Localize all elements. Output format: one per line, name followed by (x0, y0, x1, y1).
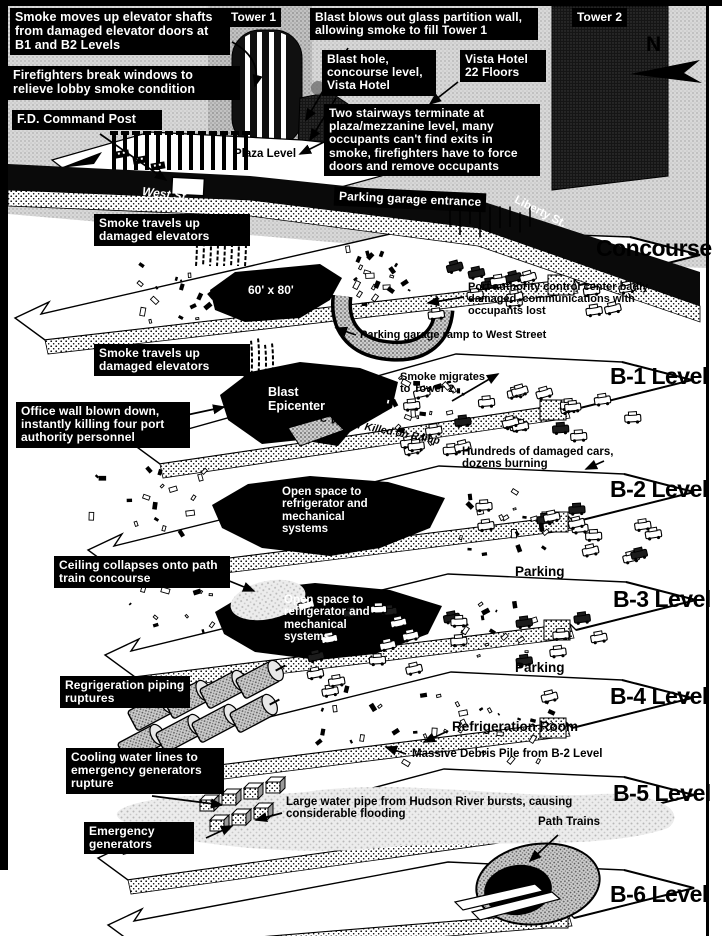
callout-smoke-travels-2: Smoke travels up damaged elevators (94, 344, 250, 376)
port-authority-label: Port authority control center badly dama… (468, 282, 680, 318)
callout-two-stairways: Two stairways terminate at plaza/mezzani… (324, 104, 540, 176)
level-label-b4: B-4 Level (610, 684, 708, 709)
open-space-b2-label: Open space to refrigerator and mechanica… (282, 486, 388, 536)
level-label-b6: B-6 Level (610, 882, 708, 907)
frame-right (706, 0, 709, 936)
parking-2-label: Parking (515, 661, 565, 676)
garage-ramp-label: Parking garage ramp to West Street (360, 330, 600, 342)
hundreds-cars-label: Hundreds of damaged cars, dozens burning (462, 446, 622, 471)
wtc-bombing-cutaway-diagram: Smoke moves up elevator shafts from dama… (0, 0, 722, 936)
callout-firefighters: Firefighters break windows to relieve lo… (8, 66, 240, 100)
frame-left (0, 0, 8, 870)
callout-cooling-water: Cooling water lines to emergency generat… (66, 748, 224, 794)
callout-tower1: Tower 1 (226, 8, 281, 27)
level-label-b2: B-2 Level (610, 477, 708, 502)
callout-blast-hole: Blast hole, concourse level, Vista Hotel (322, 50, 436, 96)
plaza-level-label: Plaza Level (234, 148, 296, 160)
callout-fd-command-post: F.D. Command Post (12, 110, 162, 130)
blast-dimensions-label: 60' x 80' (248, 284, 294, 297)
callout-emergency-generators: Emergency generators (84, 822, 194, 854)
massive-debris-label: Massive Debris Pile from B-2 Level (412, 748, 602, 760)
level-label-b1: B-1 Level (610, 364, 708, 389)
level-label-b3: B-3 Level (613, 587, 711, 612)
callout-smoke-moves: Smoke moves up elevator shafts from dama… (10, 8, 230, 55)
callout-vista-hotel: Vista Hotel 22 Floors (460, 50, 546, 82)
path-trains-label: Path Trains (538, 816, 600, 828)
level-label-concourse: Concourse (596, 236, 712, 261)
smoke-migrates-label: Smoke migrates to Tower 2 (400, 372, 492, 396)
callout-office-wall: Office wall blown down, instantly killin… (16, 402, 190, 448)
callout-smoke-travels-1: Smoke travels up damaged elevators (94, 214, 250, 246)
compass-n-label: N (646, 34, 661, 57)
callout-refrigeration-piping: Regrigeration piping ruptures (60, 676, 190, 708)
parking-1-label: Parking (515, 565, 565, 580)
level-label-b5: B-5 Level (613, 781, 711, 806)
callout-ceiling-collapses: Ceiling collapses onto path train concou… (54, 556, 230, 588)
callout-tower2: Tower 2 (572, 8, 627, 27)
open-space-b3-label: Open space to refrigerator and mechanica… (284, 594, 390, 644)
callout-blast-blows: Blast blows out glass partition wall, al… (310, 8, 538, 40)
frame-top (0, 0, 722, 6)
refrigeration-room-label: Refrigeration Room (452, 720, 578, 735)
blast-epicenter-label: Blast Epicenter (268, 386, 348, 413)
